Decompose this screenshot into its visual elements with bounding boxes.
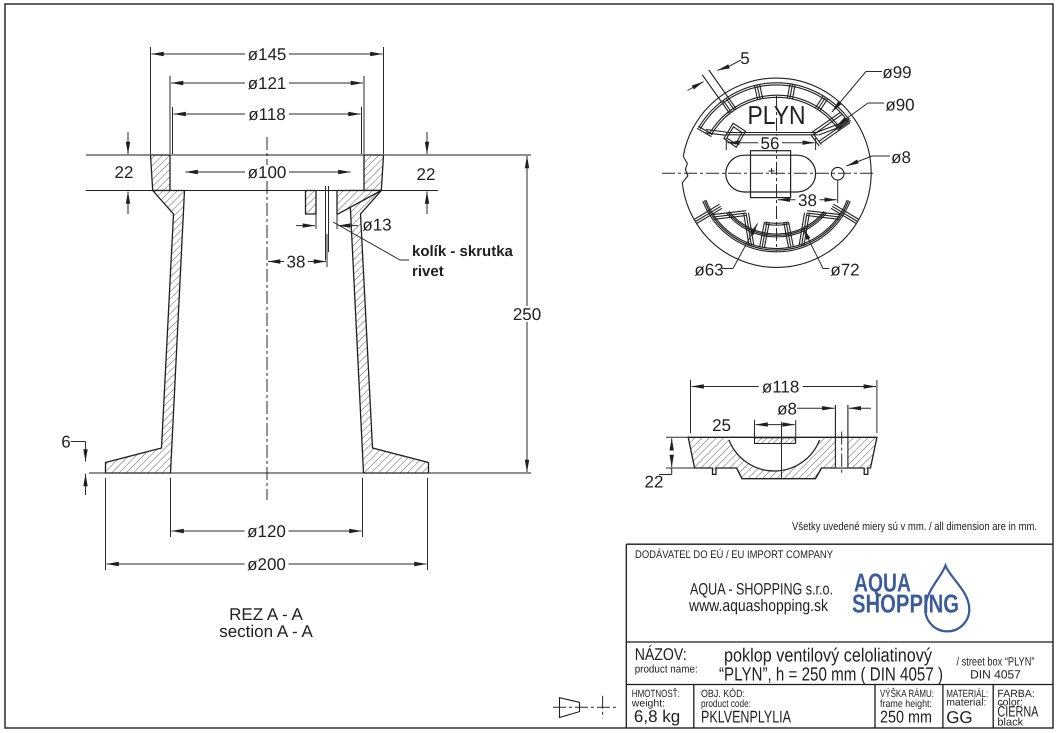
svg-text:Všetky uvedené miery sú v mm.: Všetky uvedené miery sú v mm. / all dime… <box>792 521 1037 533</box>
svg-text:ø100: ø100 <box>248 163 287 182</box>
svg-text:/ street box “PLYN”: / street box “PLYN” <box>957 655 1035 669</box>
svg-text:PLYN: PLYN <box>748 100 806 130</box>
svg-text:250 mm: 250 mm <box>880 708 932 727</box>
svg-text:GG: GG <box>946 708 972 727</box>
svg-text:22: 22 <box>645 473 664 492</box>
svg-text:5: 5 <box>740 49 749 68</box>
svg-text:“PLYN”, h = 250 mm ( DIN 4057: “PLYN”, h = 250 mm ( DIN 4057 ) <box>719 665 943 686</box>
svg-text:ø121: ø121 <box>248 74 287 93</box>
svg-text:kolík - skrutka: kolík - skrutka <box>412 243 514 260</box>
svg-text:ø90: ø90 <box>885 96 914 115</box>
svg-text:www.aquashopping.sk: www.aquashopping.sk <box>688 597 828 615</box>
svg-text:ø99: ø99 <box>882 63 911 82</box>
svg-text:6,8 kg: 6,8 kg <box>634 707 680 726</box>
svg-text:DIN 4057: DIN 4057 <box>970 668 1021 682</box>
svg-text:material:: material: <box>946 697 986 709</box>
svg-text:ø63: ø63 <box>694 261 723 280</box>
svg-text:22: 22 <box>417 165 436 184</box>
svg-text:ø118: ø118 <box>762 378 800 397</box>
svg-text:ø200: ø200 <box>247 555 286 574</box>
svg-text:ø72: ø72 <box>830 261 859 280</box>
svg-text:rivet: rivet <box>412 263 444 280</box>
svg-text:22: 22 <box>115 163 134 182</box>
svg-text:section A - A: section A - A <box>219 622 313 641</box>
svg-text:38: 38 <box>798 191 817 210</box>
svg-text:NÁZOV:: NÁZOV: <box>635 645 687 664</box>
svg-text:poklop ventilový celoliatinový: poklop ventilový celoliatinový <box>724 646 932 667</box>
svg-text:AQUA - SHOPPING s.r.o.: AQUA - SHOPPING s.r.o. <box>690 581 833 599</box>
svg-text:38: 38 <box>287 253 306 272</box>
svg-text:black: black <box>997 717 1023 729</box>
svg-text:ø13: ø13 <box>362 216 391 235</box>
svg-text:ø8: ø8 <box>777 400 797 419</box>
svg-text:25: 25 <box>712 416 731 435</box>
svg-text:DODÁVATEĽ DO EÚ / EU IMPORT CO: DODÁVATEĽ DO EÚ / EU IMPORT COMPANY <box>635 548 834 561</box>
svg-text:product name:: product name: <box>635 664 698 676</box>
svg-text:56: 56 <box>761 134 780 153</box>
svg-text:PKLVENPLYLIA: PKLVENPLYLIA <box>701 708 791 727</box>
svg-text:SHOPPING: SHOPPING <box>852 589 959 619</box>
svg-text:250: 250 <box>513 305 541 324</box>
svg-text:ø118: ø118 <box>248 105 286 124</box>
svg-text:ø8: ø8 <box>891 148 911 167</box>
svg-text:6: 6 <box>61 433 70 452</box>
svg-text:ø120: ø120 <box>247 522 286 541</box>
svg-text:ø145: ø145 <box>248 45 287 64</box>
